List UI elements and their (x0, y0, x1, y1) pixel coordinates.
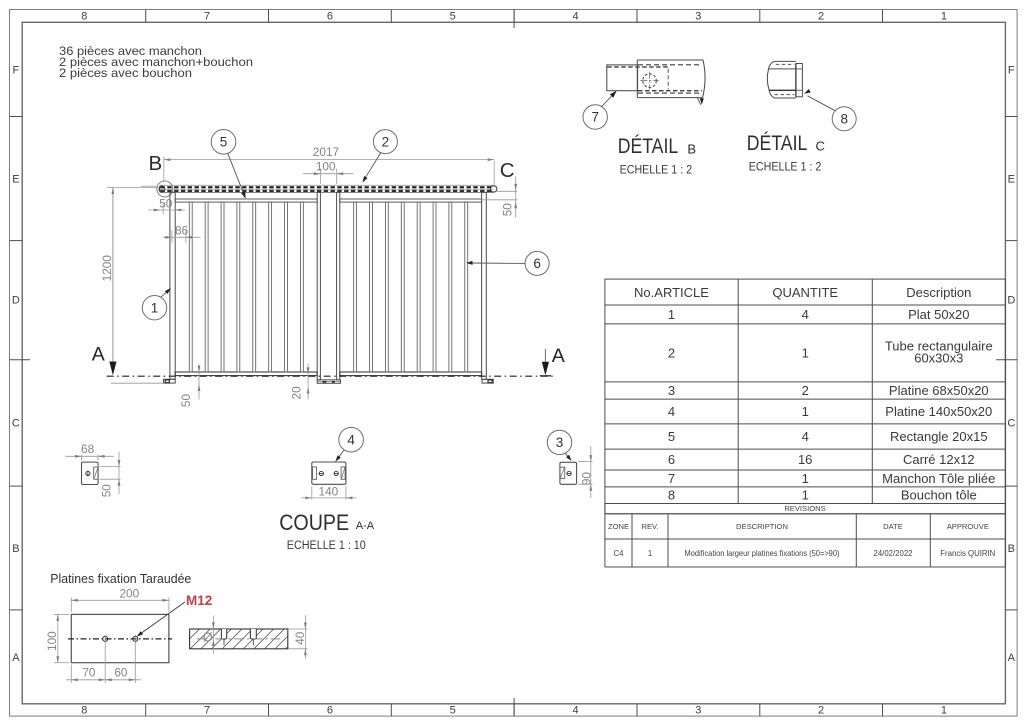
svg-text:2: 2 (382, 134, 390, 149)
svg-text:2: 2 (668, 345, 675, 360)
svg-text:ECHELLE 1 : 2: ECHELLE 1 : 2 (620, 162, 693, 176)
svg-text:5: 5 (220, 135, 228, 150)
svg-text:1: 1 (802, 471, 809, 486)
svg-text:3: 3 (668, 383, 675, 398)
svg-text:50: 50 (100, 484, 114, 498)
svg-text:7: 7 (204, 705, 210, 717)
svg-text:4: 4 (347, 432, 355, 447)
svg-text:3: 3 (695, 705, 701, 717)
svg-text:A: A (552, 345, 565, 367)
svg-text:1: 1 (802, 488, 809, 503)
svg-text:Description: Description (906, 285, 971, 300)
svg-text:No.ARTICLE: No.ARTICLE (634, 285, 709, 300)
svg-text:6: 6 (327, 705, 333, 717)
svg-text:C: C (1007, 417, 1015, 429)
svg-text:E: E (1008, 174, 1015, 186)
svg-text:70: 70 (82, 666, 96, 680)
svg-text:1: 1 (802, 345, 809, 360)
svg-text:24/02/2022: 24/02/2022 (873, 549, 912, 558)
svg-text:4: 4 (572, 11, 578, 23)
svg-text:60x30x3: 60x30x3 (914, 351, 963, 366)
svg-text:DÉTAIL: DÉTAIL (618, 133, 679, 158)
svg-text:8: 8 (840, 112, 848, 127)
svg-text:8: 8 (81, 11, 87, 23)
svg-text:2: 2 (802, 383, 809, 398)
svg-text:Carré 12x12: Carré 12x12 (903, 452, 975, 467)
svg-text:1: 1 (668, 307, 675, 322)
svg-text:90: 90 (579, 472, 593, 486)
svg-text:D: D (12, 295, 20, 307)
svg-text:Platine 68x50x20: Platine 68x50x20 (889, 383, 989, 398)
svg-text:Ø: Ø (203, 631, 213, 645)
svg-text:1: 1 (648, 549, 652, 558)
svg-text:C: C (12, 417, 20, 429)
svg-text:140: 140 (319, 484, 339, 498)
svg-text:B: B (149, 152, 163, 175)
svg-text:7: 7 (204, 11, 210, 23)
svg-text:DESCRIPTION: DESCRIPTION (736, 522, 788, 531)
svg-text:8: 8 (81, 705, 87, 717)
svg-text:E: E (12, 174, 19, 186)
svg-text:C: C (816, 139, 825, 154)
svg-text:60: 60 (114, 666, 128, 680)
svg-text:86: 86 (175, 223, 189, 237)
svg-text:5: 5 (450, 11, 456, 23)
svg-text:D: D (1007, 295, 1015, 307)
svg-text:100: 100 (45, 631, 59, 651)
svg-text:REVISIONS: REVISIONS (784, 504, 825, 513)
svg-text:5: 5 (668, 429, 675, 444)
svg-text:40: 40 (293, 631, 307, 645)
svg-text:68: 68 (81, 442, 95, 456)
svg-text:1: 1 (941, 705, 947, 717)
svg-text:F: F (13, 64, 20, 76)
svg-text:2: 2 (818, 11, 824, 23)
svg-text:Francis QUIRIN: Francis QUIRIN (940, 549, 995, 558)
svg-text:8: 8 (668, 488, 675, 503)
svg-text:M12: M12 (186, 593, 212, 608)
svg-text:QUANTITE: QUANTITE (772, 285, 838, 300)
svg-text:DATE: DATE (883, 522, 903, 531)
svg-text:ECHELLE 1 : 2: ECHELLE 1 : 2 (749, 160, 822, 174)
svg-text:1: 1 (151, 300, 159, 315)
svg-text:Bouchon tôle: Bouchon tôle (901, 488, 977, 503)
svg-text:B: B (12, 543, 19, 555)
svg-text:A: A (92, 344, 105, 366)
svg-text:3: 3 (556, 435, 564, 450)
svg-text:1200: 1200 (100, 255, 114, 282)
svg-text:1: 1 (802, 404, 809, 419)
svg-text:Manchon Tôle pliée: Manchon Tôle pliée (882, 471, 995, 486)
svg-text:Rectangle 20x15: Rectangle 20x15 (890, 429, 988, 444)
svg-text:6: 6 (327, 11, 333, 23)
svg-text:1: 1 (941, 11, 947, 23)
svg-text:COUPE: COUPE (279, 510, 349, 535)
svg-text:4: 4 (802, 429, 809, 444)
svg-text:A-A: A-A (356, 520, 375, 532)
svg-text:REV.: REV. (641, 522, 658, 531)
svg-text:ZONE: ZONE (608, 522, 629, 531)
svg-text:50: 50 (501, 203, 515, 217)
svg-text:C4: C4 (614, 549, 625, 558)
svg-text:6: 6 (668, 452, 675, 467)
svg-text:Platine 140x50x20: Platine 140x50x20 (885, 404, 992, 419)
svg-text:Plat 50x20: Plat 50x20 (908, 307, 969, 322)
svg-text:F: F (1008, 64, 1015, 76)
svg-text:2017: 2017 (313, 145, 339, 159)
svg-text:3: 3 (695, 11, 701, 23)
svg-text:A: A (1008, 652, 1016, 664)
svg-text:Platines fixation Taraudée: Platines fixation Taraudée (50, 571, 191, 586)
svg-text:B: B (1008, 543, 1015, 555)
svg-text:APPROUVE: APPROUVE (947, 522, 989, 531)
svg-text:5: 5 (450, 705, 456, 717)
svg-text:Modification largeur platines: Modification largeur platines fixations … (685, 549, 840, 558)
svg-text:4: 4 (802, 307, 809, 322)
svg-text:C: C (500, 159, 515, 182)
svg-text:4: 4 (668, 404, 675, 419)
svg-text:DÉTAIL: DÉTAIL (747, 130, 808, 155)
svg-text:7: 7 (668, 471, 675, 486)
svg-text:B: B (687, 141, 696, 156)
svg-text:100: 100 (316, 159, 336, 173)
svg-text:ECHELLE 1 : 10: ECHELLE 1 : 10 (287, 538, 366, 552)
svg-text:2: 2 (818, 705, 824, 717)
svg-text:50: 50 (179, 394, 193, 408)
svg-text:2 pièces avec bouchon: 2 pièces avec bouchon (59, 66, 192, 80)
svg-text:4: 4 (572, 705, 578, 717)
svg-text:50: 50 (159, 196, 173, 210)
svg-text:6: 6 (533, 256, 541, 271)
svg-text:A: A (12, 652, 20, 664)
svg-text:7: 7 (591, 110, 599, 125)
svg-text:20: 20 (290, 386, 304, 400)
svg-text:16: 16 (798, 452, 812, 467)
svg-text:200: 200 (119, 587, 139, 601)
